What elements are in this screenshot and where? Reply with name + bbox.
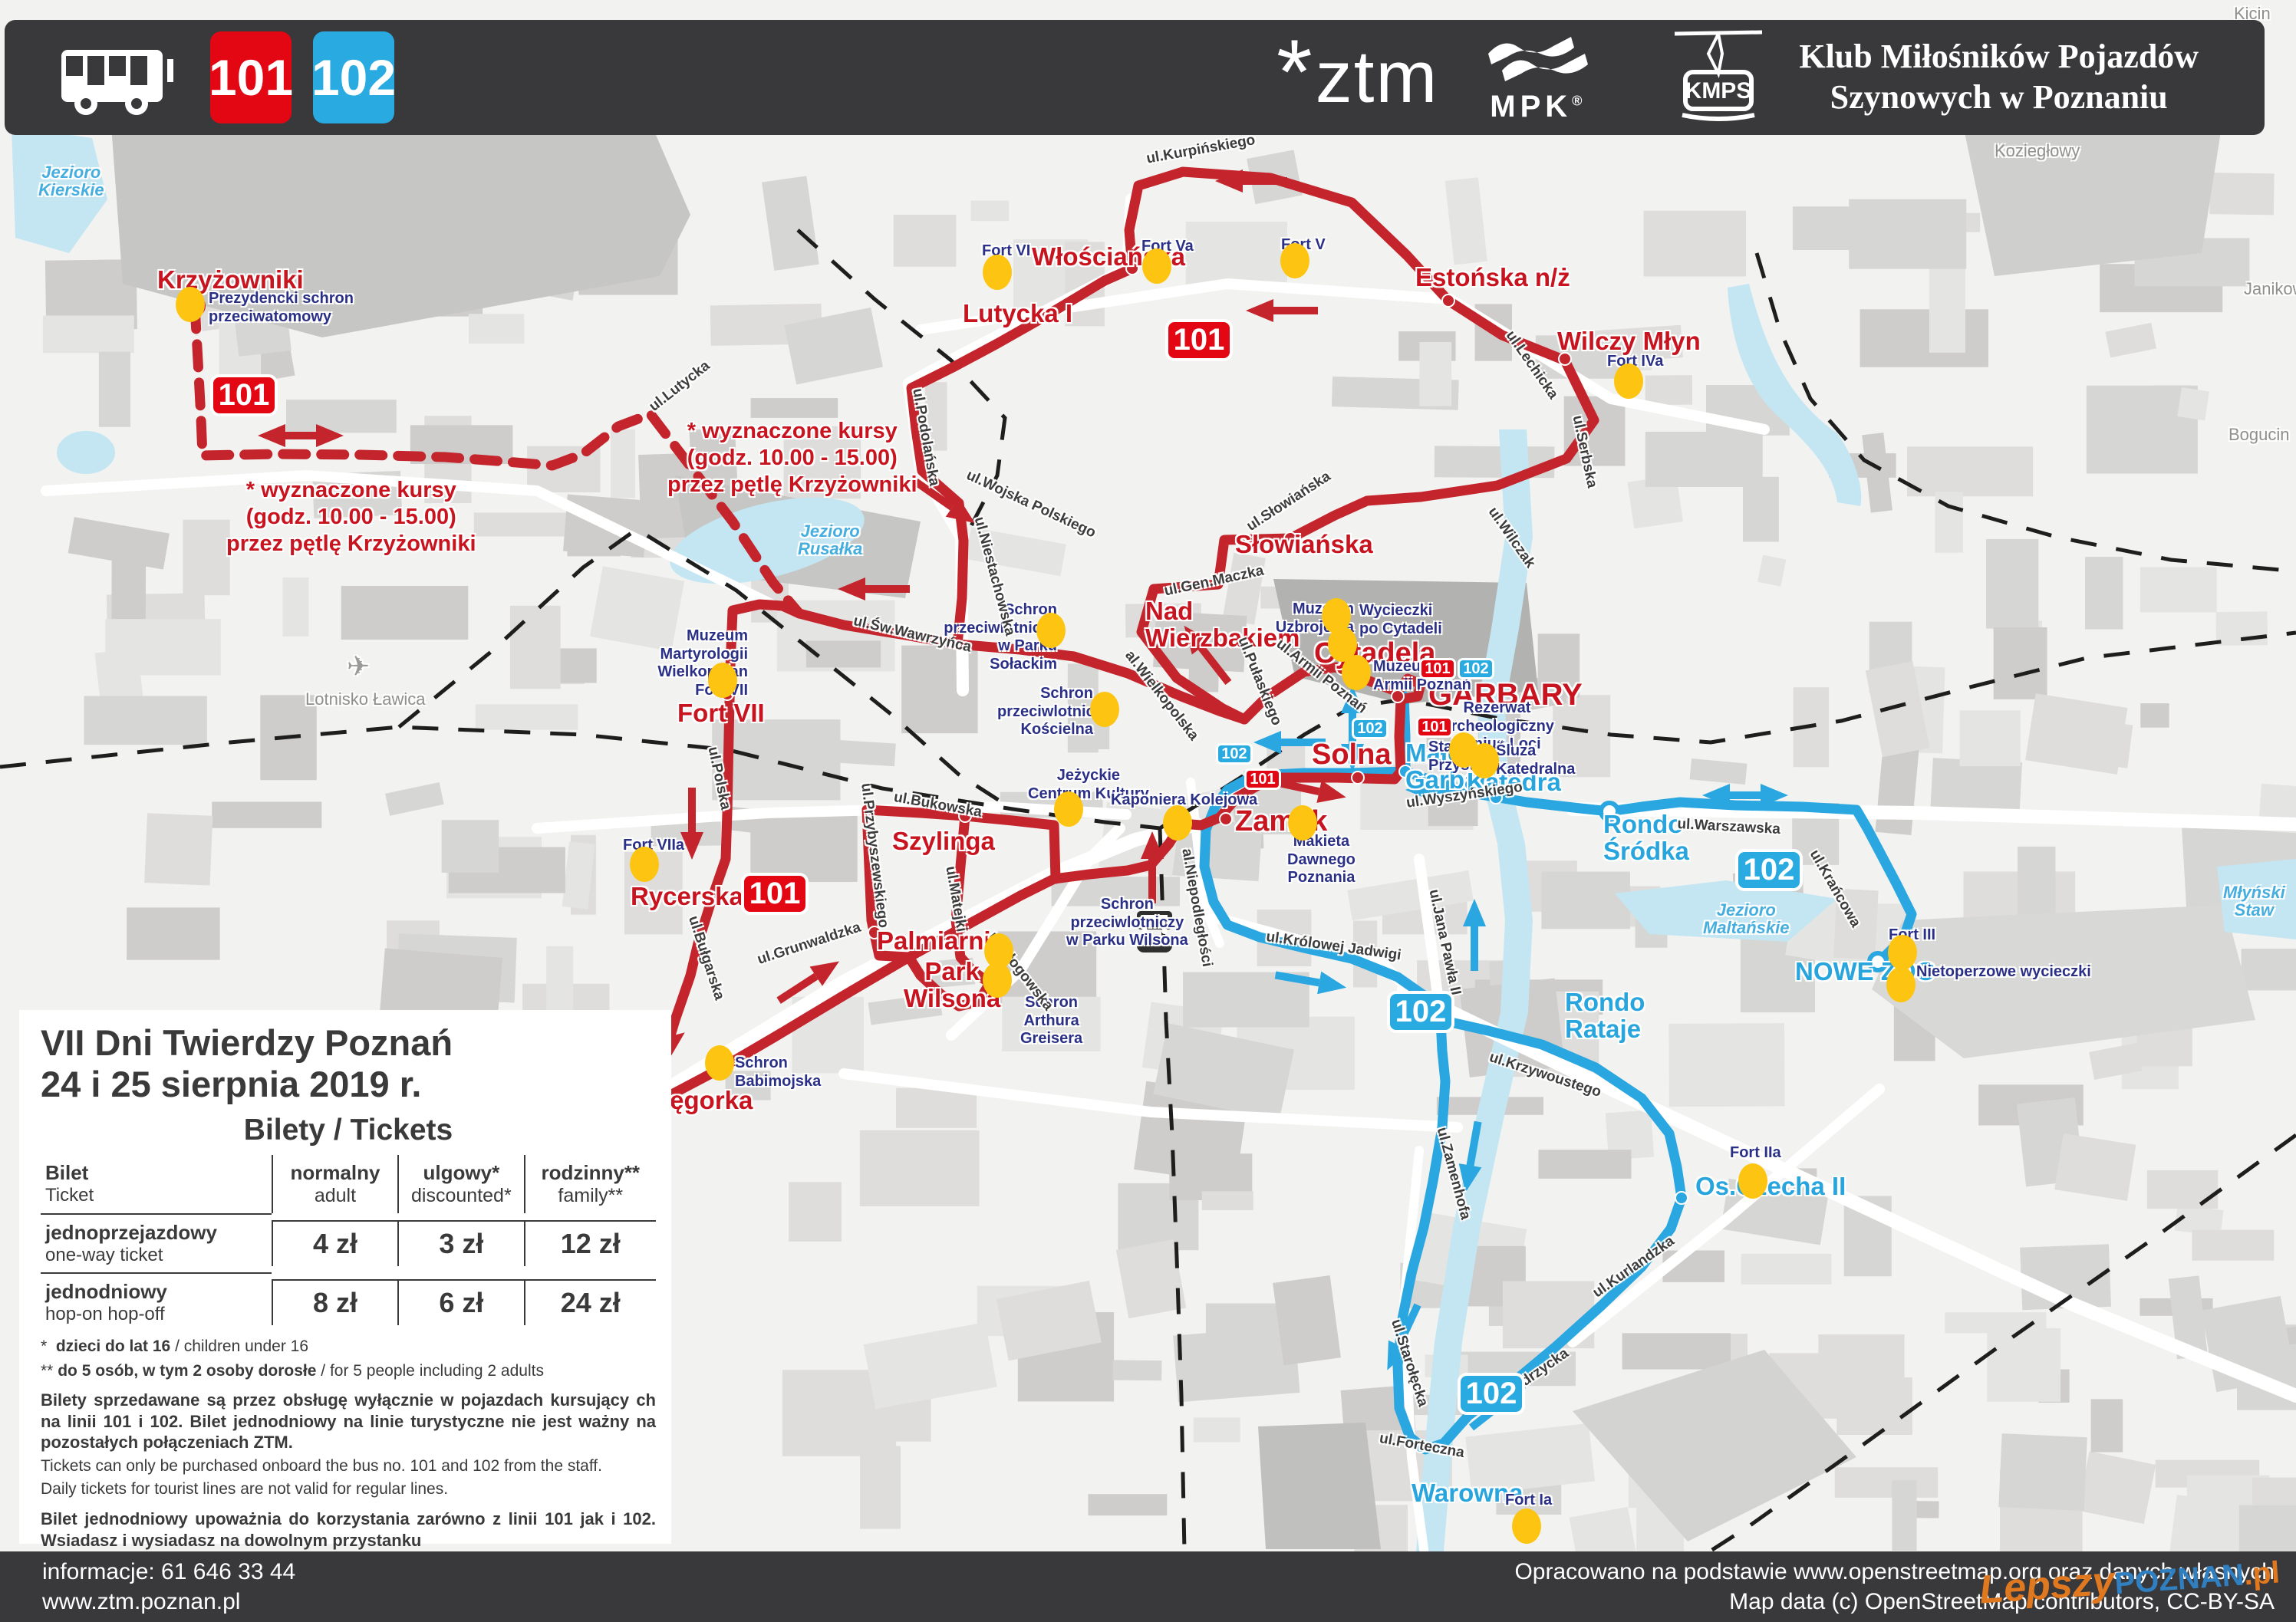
- water-jezioro-rusalka: Jezioro Rusałka: [798, 522, 862, 558]
- fort-dot-babimojska: [705, 1045, 734, 1081]
- sales-note-pl: Bilety sprzedawane są przez obsługę wyłą…: [41, 1390, 656, 1453]
- mpk-registered-mark: ®: [1572, 94, 1586, 109]
- svg-text:KMPS: KMPS: [1685, 78, 1752, 104]
- badge-101-north: 101: [1165, 319, 1233, 361]
- mpk-logo: MPK®: [1481, 31, 1596, 124]
- club-name: Klub Miłośników Pojazdów Szynowych w Poz…: [1799, 37, 2199, 118]
- poi-nietoperzowe: Nietoperzowe wycieczki: [1916, 963, 2091, 982]
- row-oneway-en: one-way ticket: [45, 1245, 267, 1266]
- fort-dot-kaponiera: [1163, 805, 1192, 841]
- badge-102-south: 102: [1458, 1373, 1525, 1415]
- place-bogucin: Bogucin: [2228, 426, 2290, 443]
- col-header-family-en: family**: [530, 1185, 651, 1207]
- fort-dot-nietoperzowe: [1886, 967, 1916, 1002]
- price-oneway-family: 12 zł: [524, 1220, 656, 1266]
- col-header-bilet: Bilet: [45, 1161, 267, 1185]
- kmps-logo: KMPS: [1668, 28, 1768, 128]
- stop-os-czecha: Os.Czecha II: [1695, 1173, 1846, 1200]
- stop-dot: [1352, 772, 1364, 784]
- badge-102-zamek: 102: [1216, 743, 1253, 765]
- price-daily-family: 24 zł: [524, 1279, 656, 1325]
- stop-rondo-rataje: Rondo Rataje: [1565, 989, 1645, 1042]
- footer-phone: informacje: 61 646 33 44: [42, 1557, 295, 1587]
- poi-schron-babimojska: Schron Babimojska: [735, 1054, 821, 1091]
- fort-dot-iia: [1738, 1163, 1767, 1199]
- footer-website[interactable]: www.ztm.poznan.pl: [42, 1587, 295, 1617]
- fort-dot-jezyckie: [1054, 791, 1083, 827]
- note-kursy-west: * wyznaczone kursy (godz. 10.00 - 15.00)…: [226, 477, 476, 557]
- tickets-table: Bilet Ticket normalny adult ulgowy* disc…: [41, 1155, 656, 1331]
- place-janikowo: Janikowo: [2244, 280, 2296, 298]
- fort-dot-krzyzowniki: [176, 287, 205, 322]
- tickets-heading: Bilety / Tickets: [41, 1114, 656, 1147]
- poi-prezydencki-schron: Prezydencki schron przeciwatomowy: [209, 290, 354, 326]
- row-daily-pl: jednodniowy: [45, 1280, 267, 1304]
- badge-101-rezerwat: 101: [1416, 716, 1453, 738]
- fort-dot-armii: [1342, 655, 1371, 690]
- col-header-normal: normalny adult: [272, 1155, 397, 1213]
- header-line-101-label: 101: [209, 48, 293, 107]
- price-daily-discounted: 6 zł: [397, 1279, 523, 1325]
- row-daily-en: hop-on hop-off: [45, 1304, 267, 1325]
- event-date-line: 24 i 25 sierpnia 2019 r.: [41, 1064, 656, 1105]
- row-oneway-pl: jednoprzejazdowy: [45, 1221, 267, 1245]
- badge-101-jezyce: 101: [741, 873, 809, 915]
- stop-wilczy-mlyn: Wilczy Młyn: [1557, 328, 1701, 355]
- col-header-discounted-pl: ulgowy*: [404, 1161, 519, 1185]
- price-daily-normal: 8 zł: [272, 1279, 397, 1325]
- fort-dot-fort-vii: [708, 663, 737, 698]
- fort-dot-va: [1142, 248, 1171, 284]
- club-name-line1: Klub Miłośników Pojazdów: [1799, 37, 2199, 77]
- fort-dot-przystan-2: [1470, 743, 1499, 778]
- header-line-101-badge[interactable]: 101: [210, 31, 292, 123]
- stop-szylinga: Szylinga: [892, 828, 995, 855]
- header-bar: 101 102 *ztm MPK® KMPS Klub Miłośników P…: [5, 20, 2265, 135]
- fort-dot-makieta: [1288, 805, 1317, 841]
- poi-schron-park-wilsona: Schron przeciwlotniczy w Parku Wilsona: [1066, 896, 1188, 950]
- fort-dot-park-wilsona-2: [983, 962, 1012, 998]
- stop-dot: [1675, 1192, 1688, 1204]
- stop-lutycka: Lutycka I: [963, 301, 1072, 327]
- badge-102-garbary-spur: 102: [1352, 718, 1388, 739]
- info-panel: VII Dni Twierdzy Poznań 24 i 25 sierpnia…: [19, 1010, 671, 1544]
- price-oneway-normal: 4 zł: [272, 1220, 397, 1266]
- badge-102-center: 102: [1387, 991, 1454, 1033]
- col-header-normal-pl: normalny: [278, 1161, 393, 1185]
- note-kursy-center: * wyznaczone kursy (godz. 10.00 - 15.00)…: [667, 418, 917, 498]
- daily-ticket-note-pl: Bilet jednodniowy upoważnia do korzystan…: [41, 1508, 656, 1551]
- fort-dot-vi: [983, 255, 1012, 290]
- stop-dot: [1220, 813, 1232, 825]
- row-oneway-label: jednoprzejazdowy one-way ticket: [41, 1213, 272, 1272]
- header-line-102-label: 102: [311, 48, 396, 107]
- sales-note-en2: Daily tickets for tourist lines are not …: [41, 1479, 656, 1499]
- stop-fort-vii: Fort VII: [677, 700, 765, 727]
- price-oneway-discounted: 3 zł: [397, 1220, 523, 1266]
- club-name-line2: Szynowych w Poznaniu: [1799, 77, 2199, 118]
- ztm-logo: *ztm: [1276, 35, 1438, 120]
- fort-dot-viia: [630, 847, 659, 882]
- poi-fort-ia: Fort Ia: [1505, 1492, 1552, 1510]
- footnote-children: * dzieci do lat 16 / children under 16: [41, 1337, 656, 1356]
- col-header-discounted-en: discounted*: [404, 1185, 519, 1207]
- poi-fort-iia: Fort IIa: [1730, 1144, 1781, 1163]
- event-title-line1: VII Dni Twierdzy Poznań: [41, 1022, 656, 1064]
- kmps-tram-icon: KMPS: [1668, 28, 1768, 124]
- table-corner-cell: Bilet Ticket: [41, 1155, 272, 1213]
- water-jezioro-maltanskie: Jezioro Maltańskie: [1703, 901, 1790, 936]
- badge-101-solna: 101: [1244, 768, 1281, 790]
- watermark-lepszy: Lepszy: [1978, 1558, 2116, 1612]
- bus-icon: [58, 28, 181, 127]
- header-line-102-badge[interactable]: 102: [313, 31, 394, 123]
- water-mlynski-staw: Młyński Staw: [2223, 883, 2285, 919]
- stop-slowianska: Słowiańska: [1235, 531, 1373, 558]
- map-page: KrzyżownikiLutycka IWłościańskaEstońska …: [0, 0, 2296, 1622]
- event-title: VII Dni Twierdzy Poznań 24 i 25 sierpnia…: [41, 1022, 656, 1104]
- fort-dot-iva: [1614, 364, 1643, 399]
- mpk-logo-text: MPK®: [1481, 90, 1596, 124]
- col-header-family: rodzinny** family**: [524, 1155, 656, 1213]
- fort-dot-solacki: [1036, 613, 1066, 648]
- footnote-family: ** do 5 osób, w tym 2 osoby dorosłe / fo…: [41, 1362, 656, 1380]
- ztm-star-icon: *: [1276, 35, 1314, 109]
- poi-sluza-katedralna: Śluza Katedralna: [1496, 742, 1575, 778]
- sales-note-en1: Tickets can only be purchased onboard th…: [41, 1456, 656, 1476]
- watermark-poznan: POZNAN: [2113, 1558, 2245, 1601]
- fort-dot-ia: [1512, 1508, 1541, 1544]
- place-lotnisko-lawica: Lotnisko Ławica: [305, 690, 426, 708]
- mpk-waves-icon: [1481, 31, 1596, 86]
- row-daily-label: jednodniowy hop-on hop-off: [41, 1272, 272, 1331]
- fort-dot-iii: [1888, 935, 1917, 970]
- col-header-ticket: Ticket: [45, 1185, 267, 1206]
- poi-schron-koscielna: Schron przeciwlotniczy Kościelna: [997, 685, 1093, 739]
- badge-101-garbary: 101: [1419, 658, 1456, 679]
- water-jezioro-kierskie: Jezioro Kierskie: [38, 163, 104, 199]
- badge-101-west: 101: [210, 374, 278, 416]
- col-header-discounted: ulgowy* discounted*: [397, 1155, 523, 1213]
- stop-rondo-srodka: Rondo Śródka: [1603, 811, 1689, 864]
- stop-estonska: Estońska n/ż: [1415, 265, 1570, 291]
- poi-makieta: Makieta Dawnego Poznania: [1287, 833, 1356, 887]
- stop-solna: Solna: [1312, 740, 1391, 771]
- poi-wycieczki-po-cytadeli: Wycieczki po Cytadeli: [1359, 602, 1442, 638]
- watermark-pl: .pl: [2243, 1555, 2281, 1591]
- col-header-normal-en: adult: [278, 1185, 393, 1207]
- stop-rycerska: Rycerska: [631, 883, 743, 910]
- footer-bar: informacje: 61 646 33 44 www.ztm.poznan.…: [0, 1551, 2296, 1622]
- fort-dot-v: [1280, 243, 1309, 278]
- place-kozieglowy: Koziegłowy: [1995, 142, 2080, 160]
- ztm-logo-text: ztm: [1316, 35, 1439, 120]
- col-header-family-pl: rodzinny**: [530, 1161, 651, 1185]
- badge-102-east: 102: [1735, 849, 1803, 891]
- fort-dot-koscielna: [1090, 692, 1119, 727]
- footer-contact: informacje: 61 646 33 44 www.ztm.poznan.…: [42, 1557, 295, 1617]
- badge-102-garbary: 102: [1458, 658, 1494, 679]
- stop-dot: [1442, 294, 1454, 307]
- airplane-icon: ✈: [347, 652, 370, 681]
